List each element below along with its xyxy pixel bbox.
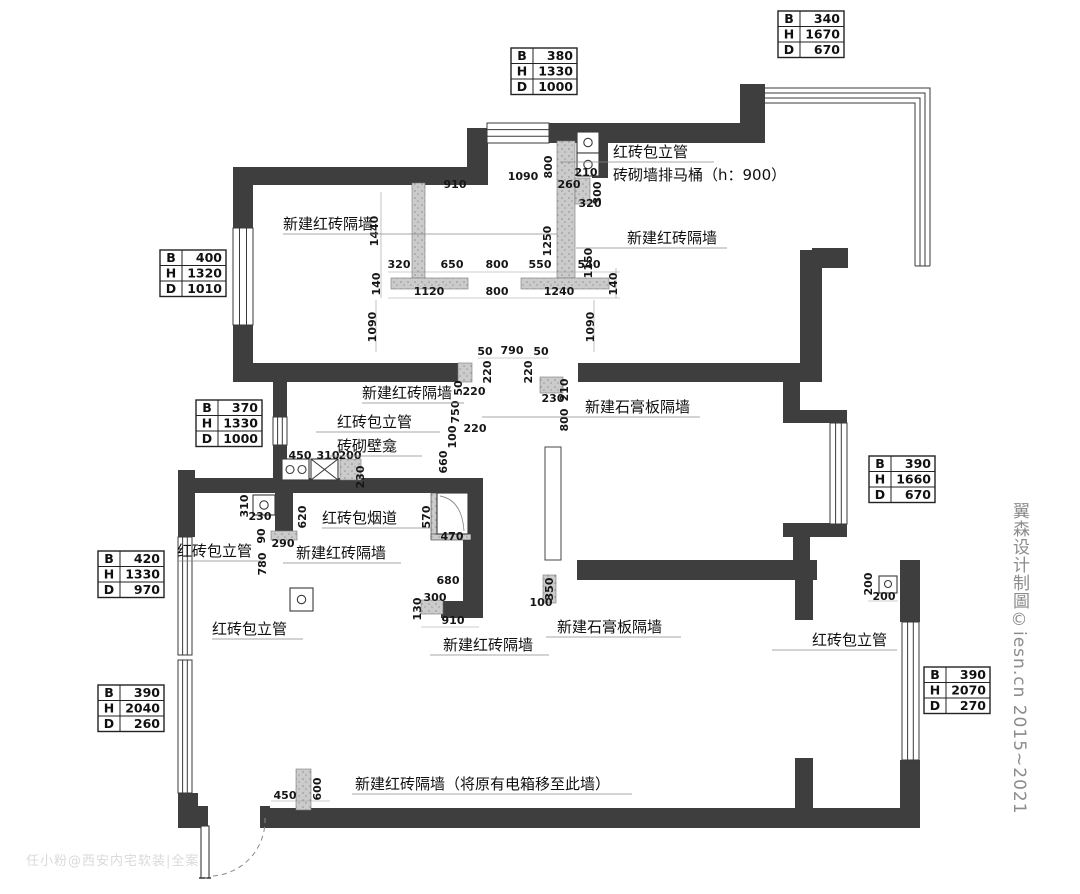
wall-label-text: 新建石膏板隔墙 bbox=[585, 398, 690, 416]
spec-table-value: 2070 bbox=[951, 683, 986, 698]
gypsum-wall bbox=[545, 447, 561, 560]
dimension-text: 220 bbox=[463, 385, 486, 398]
spec-table-key: H bbox=[202, 416, 212, 431]
dimension-text: 90 bbox=[255, 528, 268, 544]
dimension-text: 100 bbox=[446, 425, 459, 448]
spec-table: B380H1330D1000 bbox=[511, 48, 577, 95]
dimension-text: 650 bbox=[441, 258, 464, 271]
spec-table-key: D bbox=[166, 281, 176, 296]
niche-pipe-box bbox=[282, 459, 309, 480]
dimension-text: 1090 bbox=[366, 311, 379, 342]
dimension-text: 800 bbox=[486, 258, 509, 271]
spec-table-key: B bbox=[784, 11, 794, 26]
spec-table-value: 1670 bbox=[805, 27, 840, 42]
window-bath-top bbox=[487, 123, 549, 143]
dimension-text: 320 bbox=[388, 258, 411, 271]
dimension-text: 800 bbox=[542, 155, 555, 178]
dimension-text: 450 bbox=[289, 449, 312, 462]
dimension-text: 910 bbox=[442, 614, 465, 627]
dimension-text: 220 bbox=[464, 422, 487, 435]
spec-table: B370H1330D1000 bbox=[196, 400, 262, 447]
spec-table-key: D bbox=[517, 79, 527, 94]
dimension-text: 570 bbox=[420, 505, 433, 528]
spec-table-key: H bbox=[784, 27, 794, 42]
wall-label-text: 红砖包烟道 bbox=[322, 509, 397, 527]
dimension-text: 800 bbox=[486, 285, 509, 298]
spec-table-value: 1320 bbox=[187, 266, 222, 281]
dimension-text: 290 bbox=[272, 537, 295, 550]
dimension-text: 140 bbox=[607, 272, 620, 295]
dimension-text: 220 bbox=[522, 360, 535, 383]
spec-table: B420H1330D970 bbox=[98, 551, 164, 598]
dimension-text: 130 bbox=[411, 597, 424, 620]
spec-table-value: 390 bbox=[905, 456, 931, 471]
spec-table-key: H bbox=[930, 683, 940, 698]
spec-table-value: 340 bbox=[814, 11, 840, 26]
spec-table-value: 1330 bbox=[538, 64, 573, 79]
spec-table-value: 1660 bbox=[896, 472, 931, 487]
dimension-text: 780 bbox=[256, 552, 269, 575]
dimension-text: 550 bbox=[529, 258, 552, 271]
watermark-bottom-left: 任小粉@西安内宅软装|全案 bbox=[26, 850, 199, 869]
niche-x-box bbox=[311, 459, 338, 480]
dimension-text: 300 bbox=[424, 591, 447, 604]
spec-table-value: 1010 bbox=[187, 281, 222, 296]
spec-table-key: H bbox=[517, 64, 527, 79]
dimension-text: 1090 bbox=[508, 170, 539, 183]
floorplan-canvas: 9101090800210260300320144012501150320650… bbox=[0, 0, 1080, 894]
wall-label-text: 红砖包立管 bbox=[212, 620, 287, 638]
dimension-text: 620 bbox=[296, 505, 309, 528]
spec-table-key: D bbox=[784, 42, 794, 57]
spec-table-key: H bbox=[104, 701, 114, 716]
dimension-text: 600 bbox=[311, 777, 324, 800]
dimension-text: 1250 bbox=[541, 225, 554, 256]
dimension-text: 210 bbox=[558, 378, 571, 401]
dimension-text: 910 bbox=[444, 178, 467, 191]
dimension-text: 470 bbox=[441, 530, 464, 543]
window-left-bottom bbox=[178, 660, 192, 793]
spec-table-value: 1330 bbox=[223, 416, 258, 431]
dimension-text: 320 bbox=[579, 197, 602, 210]
dimension-text: 1120 bbox=[414, 285, 445, 298]
dimension-text: 450 bbox=[274, 789, 297, 802]
spec-table-key: H bbox=[104, 567, 114, 582]
spec-table-value: 1000 bbox=[538, 79, 573, 94]
spec-table-value: 670 bbox=[905, 487, 931, 502]
pipe-box-bath-1 bbox=[577, 132, 599, 153]
dimension-text: 50 bbox=[533, 345, 549, 358]
spec-table-value: 1000 bbox=[223, 431, 258, 446]
dimension-text: 220 bbox=[481, 360, 494, 383]
spec-table-key: B bbox=[517, 48, 527, 63]
wall-label-text: 新建石膏板隔墙 bbox=[557, 618, 662, 636]
window-left-mid bbox=[273, 417, 287, 445]
spec-table: B390H2070D270 bbox=[924, 667, 990, 714]
spec-table-value: 670 bbox=[814, 42, 840, 57]
wall-label-text: 红砖包立管 bbox=[177, 542, 252, 560]
dimension-text: 1240 bbox=[544, 285, 575, 298]
wall-label-text: 红砖包立管 bbox=[337, 413, 412, 431]
spec-table: B390H2040D260 bbox=[98, 685, 164, 732]
spec-table-value: 370 bbox=[232, 400, 258, 415]
dimension-text: 1090 bbox=[584, 311, 597, 342]
wall-label-text: 新建红砖隔墙 bbox=[283, 215, 373, 233]
spec-table-key: H bbox=[875, 472, 885, 487]
spec-table-key: B bbox=[104, 685, 114, 700]
spec-table: B340H1670D670 bbox=[778, 11, 844, 58]
dimension-text: 260 bbox=[558, 178, 581, 191]
spec-table-key: D bbox=[104, 582, 114, 597]
entry-door bbox=[199, 818, 265, 878]
wall-label-text: 新建红砖隔墙 bbox=[362, 384, 452, 402]
spec-table-key: B bbox=[930, 667, 940, 682]
spec-table-value: 260 bbox=[134, 716, 160, 731]
spec-table-value: 390 bbox=[134, 685, 160, 700]
wall-label-text: 砖砌墙排马桶（h：900） bbox=[613, 166, 786, 184]
floorplan-drawing: 9101090800210260300320144012501150320650… bbox=[0, 0, 1080, 894]
spec-table-value: 970 bbox=[134, 582, 160, 597]
dimension-text: 230 bbox=[354, 465, 367, 488]
wall-label-text: 红砖包立管 bbox=[613, 143, 688, 161]
spec-table: B390H1660D670 bbox=[869, 456, 935, 503]
spec-table-key: D bbox=[930, 698, 940, 713]
spec-table-value: 380 bbox=[547, 48, 573, 63]
windows bbox=[178, 88, 930, 793]
spec-table-key: D bbox=[104, 716, 114, 731]
dimension-text: 50 bbox=[477, 345, 493, 358]
spec-table-key: B bbox=[104, 551, 114, 566]
spec-table-value: 420 bbox=[134, 551, 160, 566]
dimension-text: 100 bbox=[530, 596, 553, 609]
dimension-text: 790 bbox=[501, 344, 524, 357]
dimension-text: 660 bbox=[437, 450, 450, 473]
dimension-text: 540 bbox=[578, 258, 601, 271]
spec-table-value: 1330 bbox=[125, 567, 160, 582]
dimension-text: 140 bbox=[370, 272, 383, 295]
spec-table-value: 390 bbox=[960, 667, 986, 682]
dimension-text: 230 bbox=[249, 510, 272, 523]
bay-window-top-right bbox=[764, 88, 930, 266]
dimension-text: 680 bbox=[437, 574, 460, 587]
spec-table: B400H1320D1010 bbox=[160, 250, 226, 297]
wall-label-text: 新建红砖隔墙 bbox=[296, 544, 386, 562]
window-right-bottom bbox=[902, 622, 919, 760]
watermark-right: 翼森设计制圖©iesn.cn 2015~2021 bbox=[1007, 502, 1032, 894]
wall-label-text: 砖砌壁龛 bbox=[337, 437, 397, 455]
spec-table-key: D bbox=[875, 487, 885, 502]
wall-label-text: 红砖包立管 bbox=[812, 631, 887, 649]
spec-table-key: H bbox=[166, 266, 176, 281]
pipe-box-lower-left bbox=[290, 588, 313, 611]
spec-table-key: B bbox=[202, 400, 212, 415]
spec-table-key: B bbox=[875, 456, 885, 471]
spec-table-key: B bbox=[166, 250, 176, 265]
wall-label-text: 新建红砖隔墙（将原有电箱移至此墙） bbox=[355, 775, 610, 793]
wall-label-text: 新建红砖隔墙 bbox=[443, 636, 533, 654]
dimension-text: 800 bbox=[558, 408, 571, 431]
dimension-text: 200 bbox=[873, 590, 896, 603]
dimension-text: 750 bbox=[449, 400, 462, 423]
spec-table-value: 2040 bbox=[125, 701, 160, 716]
wall-label-text: 新建红砖隔墙 bbox=[627, 229, 717, 247]
bay-window-right bbox=[830, 423, 847, 524]
spec-table-value: 400 bbox=[196, 250, 222, 265]
spec-table-value: 270 bbox=[960, 698, 986, 713]
spec-table-key: D bbox=[202, 431, 212, 446]
window-top-left bbox=[233, 228, 253, 325]
